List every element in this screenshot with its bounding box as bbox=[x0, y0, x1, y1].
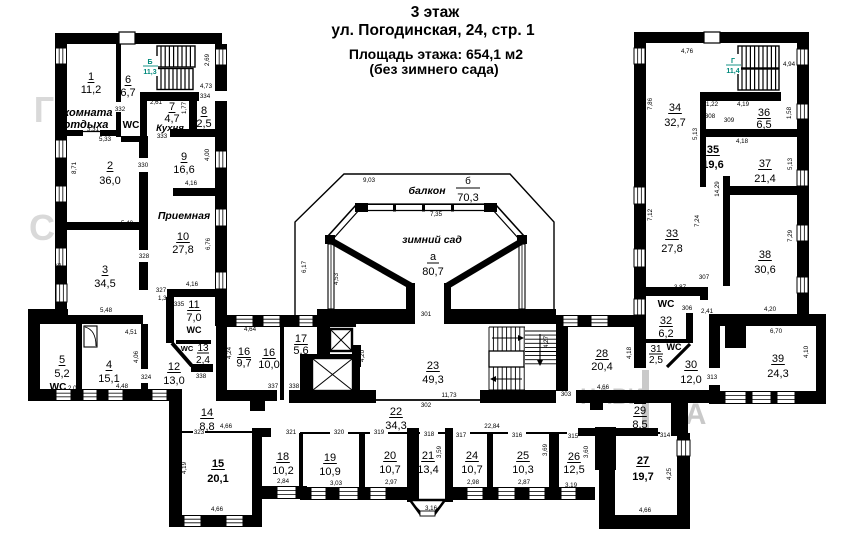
svg-text:314: 314 bbox=[660, 432, 671, 439]
svg-text:70,3: 70,3 bbox=[457, 192, 478, 204]
svg-text:1,58: 1,58 bbox=[786, 106, 793, 119]
svg-text:80,7: 80,7 bbox=[422, 266, 443, 278]
svg-text:337: 337 bbox=[268, 383, 279, 390]
svg-text:7,35: 7,35 bbox=[430, 211, 443, 218]
svg-text:Площадь этажа: 654,1 м2: Площадь этажа: 654,1 м2 bbox=[349, 46, 523, 62]
svg-text:6,7: 6,7 bbox=[120, 87, 135, 99]
svg-text:9: 9 bbox=[181, 151, 187, 163]
svg-text:Г: Г bbox=[731, 58, 735, 65]
svg-text:33: 33 bbox=[666, 228, 678, 240]
svg-text:17: 17 bbox=[295, 333, 307, 345]
svg-text:7,12: 7,12 bbox=[647, 208, 654, 221]
svg-text:8,71: 8,71 bbox=[71, 161, 78, 174]
svg-text:С: С bbox=[29, 207, 55, 248]
svg-text:16: 16 bbox=[238, 346, 250, 358]
svg-text:WC: WC bbox=[50, 382, 67, 393]
svg-text:315: 315 bbox=[568, 433, 579, 440]
svg-text:5,13: 5,13 bbox=[692, 127, 699, 140]
svg-text:6,17: 6,17 bbox=[301, 260, 308, 273]
svg-text:12: 12 bbox=[168, 361, 180, 373]
svg-text:7,86: 7,86 bbox=[647, 97, 654, 110]
svg-text:4,20: 4,20 bbox=[764, 306, 777, 313]
svg-text:32: 32 bbox=[660, 315, 672, 327]
svg-text:4,27: 4,27 bbox=[543, 335, 550, 348]
svg-text:WC: WC bbox=[181, 344, 194, 353]
svg-text:ул. Погодинская, 24, стр. 1: ул. Погодинская, 24, стр. 1 bbox=[331, 22, 535, 39]
svg-text:2,61: 2,61 bbox=[150, 99, 163, 106]
svg-text:13: 13 bbox=[197, 343, 209, 354]
svg-text:4,19: 4,19 bbox=[737, 101, 750, 108]
svg-text:3: 3 bbox=[102, 264, 108, 276]
svg-text:5,40: 5,40 bbox=[121, 220, 134, 227]
svg-text:4,00: 4,00 bbox=[204, 148, 211, 161]
svg-text:WC: WC bbox=[658, 299, 675, 310]
svg-text:26: 26 bbox=[568, 451, 580, 463]
svg-text:(без зимнего сада): (без зимнего сада) bbox=[369, 61, 498, 77]
svg-text:Г: Г bbox=[34, 89, 54, 130]
svg-text:49,3: 49,3 bbox=[422, 374, 443, 386]
svg-text:316: 316 bbox=[512, 432, 523, 439]
svg-text:балкон: балкон bbox=[408, 185, 446, 197]
svg-text:4,18: 4,18 bbox=[736, 138, 749, 145]
svg-text:10,7: 10,7 bbox=[461, 464, 482, 476]
svg-text:11,3: 11,3 bbox=[143, 69, 156, 76]
svg-text:11,73: 11,73 bbox=[441, 392, 457, 399]
svg-text:1,32: 1,32 bbox=[158, 295, 171, 302]
svg-text:11,4: 11,4 bbox=[726, 68, 739, 75]
svg-text:27,8: 27,8 bbox=[172, 244, 193, 256]
svg-text:8,5: 8,5 bbox=[632, 419, 647, 431]
svg-text:6: 6 bbox=[125, 74, 131, 86]
svg-text:5,33: 5,33 bbox=[99, 136, 112, 143]
svg-text:1: 1 bbox=[88, 71, 94, 83]
svg-text:10,2: 10,2 bbox=[272, 465, 293, 477]
svg-text:6,2: 6,2 bbox=[658, 328, 673, 340]
svg-text:36: 36 bbox=[758, 107, 770, 119]
svg-text:323: 323 bbox=[194, 429, 205, 436]
svg-text:9,03: 9,03 bbox=[363, 177, 376, 184]
svg-text:7: 7 bbox=[169, 101, 175, 113]
svg-text:333: 333 bbox=[157, 133, 168, 140]
svg-text:2,06: 2,06 bbox=[68, 385, 81, 392]
svg-text:317: 317 bbox=[456, 432, 467, 439]
svg-text:4,66: 4,66 bbox=[211, 506, 224, 513]
svg-text:22: 22 bbox=[390, 406, 402, 418]
svg-text:3,03: 3,03 bbox=[330, 480, 343, 487]
svg-text:4,66: 4,66 bbox=[220, 423, 233, 430]
svg-text:10,7: 10,7 bbox=[379, 464, 400, 476]
svg-text:31: 31 bbox=[650, 344, 662, 355]
svg-text:20,1: 20,1 bbox=[207, 473, 228, 485]
svg-text:4,06: 4,06 bbox=[133, 350, 140, 363]
svg-text:330: 330 bbox=[138, 162, 149, 169]
svg-text:308: 308 bbox=[705, 113, 716, 120]
svg-text:2: 2 bbox=[107, 160, 113, 172]
svg-text:335: 335 bbox=[174, 301, 185, 308]
svg-text:4,10: 4,10 bbox=[803, 345, 810, 358]
svg-text:3,59: 3,59 bbox=[436, 445, 443, 458]
svg-text:27,8: 27,8 bbox=[661, 243, 682, 255]
svg-text:4,19: 4,19 bbox=[181, 461, 188, 474]
svg-text:7,24: 7,24 bbox=[694, 214, 701, 227]
svg-text:5,13: 5,13 bbox=[787, 157, 794, 170]
svg-text:13,0: 13,0 bbox=[163, 375, 184, 387]
svg-text:4,94: 4,94 bbox=[783, 61, 796, 68]
svg-text:37: 37 bbox=[759, 158, 771, 170]
svg-text:2,41: 2,41 bbox=[701, 308, 714, 315]
svg-text:4,16: 4,16 bbox=[185, 180, 198, 187]
svg-text:5,2: 5,2 bbox=[54, 368, 69, 380]
svg-text:20: 20 bbox=[384, 450, 396, 462]
svg-text:303: 303 bbox=[561, 391, 572, 398]
svg-text:5: 5 bbox=[59, 354, 65, 366]
svg-text:4,53: 4,53 bbox=[333, 272, 340, 285]
svg-text:3,31: 3,31 bbox=[87, 126, 100, 133]
svg-text:1,22: 1,22 bbox=[706, 101, 719, 108]
svg-text:302: 302 bbox=[421, 402, 432, 409]
svg-text:10,0: 10,0 bbox=[258, 359, 279, 371]
svg-text:11: 11 bbox=[188, 299, 199, 311]
svg-text:13,4: 13,4 bbox=[417, 464, 438, 476]
svg-text:WC: WC bbox=[187, 325, 202, 335]
svg-text:24: 24 bbox=[466, 450, 478, 462]
svg-text:328: 328 bbox=[139, 253, 150, 260]
svg-text:306: 306 bbox=[682, 305, 693, 312]
svg-text:320: 320 bbox=[334, 429, 345, 436]
svg-text:16,6: 16,6 bbox=[173, 164, 194, 176]
svg-text:а: а bbox=[430, 251, 437, 263]
svg-text:4,24: 4,24 bbox=[226, 346, 233, 359]
svg-text:10,3: 10,3 bbox=[512, 464, 533, 476]
svg-text:3,16: 3,16 bbox=[425, 505, 438, 512]
svg-text:338: 338 bbox=[289, 383, 300, 390]
svg-text:4,51: 4,51 bbox=[125, 329, 138, 336]
svg-text:8: 8 bbox=[201, 105, 207, 117]
svg-text:307: 307 bbox=[699, 274, 710, 281]
svg-text:34: 34 bbox=[669, 102, 681, 114]
svg-text:3,19: 3,19 bbox=[565, 482, 578, 489]
svg-text:4,48: 4,48 bbox=[116, 383, 129, 390]
svg-text:2,4: 2,4 bbox=[196, 355, 210, 366]
svg-text:2,98: 2,98 bbox=[467, 479, 480, 486]
svg-text:2,5: 2,5 bbox=[649, 355, 663, 366]
svg-text:3,69: 3,69 bbox=[542, 443, 549, 456]
svg-text:309: 309 bbox=[724, 117, 735, 124]
svg-text:3 этаж: 3 этаж bbox=[411, 4, 460, 21]
svg-text:14,29: 14,29 bbox=[714, 181, 721, 197]
svg-text:38: 38 bbox=[759, 249, 771, 261]
svg-text:313: 313 bbox=[707, 374, 718, 381]
svg-text:6,70: 6,70 bbox=[770, 328, 783, 335]
svg-text:39: 39 bbox=[772, 353, 784, 365]
svg-text:4,73: 4,73 bbox=[200, 83, 213, 90]
svg-text:35: 35 bbox=[707, 144, 719, 156]
svg-text:6,76: 6,76 bbox=[205, 237, 212, 250]
svg-text:34,3: 34,3 bbox=[385, 420, 406, 432]
svg-text:4,76: 4,76 bbox=[681, 48, 694, 55]
svg-text:6,5: 6,5 bbox=[756, 119, 771, 131]
svg-text:20,4: 20,4 bbox=[591, 361, 612, 373]
svg-text:318: 318 bbox=[424, 431, 435, 438]
svg-text:327: 327 bbox=[156, 287, 167, 294]
svg-text:7,0: 7,0 bbox=[186, 312, 201, 324]
svg-text:34,5: 34,5 bbox=[94, 278, 115, 290]
svg-text:301: 301 bbox=[421, 311, 432, 318]
svg-text:3,87: 3,87 bbox=[674, 284, 687, 291]
svg-text:4,66: 4,66 bbox=[639, 507, 652, 514]
svg-text:18: 18 bbox=[277, 451, 289, 463]
svg-text:27: 27 bbox=[637, 455, 649, 467]
svg-text:2,87: 2,87 bbox=[518, 479, 531, 486]
svg-text:21,4: 21,4 bbox=[754, 173, 775, 185]
svg-text:5,48: 5,48 bbox=[100, 307, 113, 314]
svg-text:4,18: 4,18 bbox=[626, 346, 633, 359]
svg-text:2,69: 2,69 bbox=[204, 53, 211, 66]
svg-text:15: 15 bbox=[212, 458, 224, 470]
svg-text:332: 332 bbox=[115, 106, 126, 113]
svg-text:7,29: 7,29 bbox=[787, 229, 794, 242]
svg-text:32,7: 32,7 bbox=[664, 117, 685, 129]
svg-text:24,3: 24,3 bbox=[767, 368, 788, 380]
svg-text:338: 338 bbox=[196, 373, 207, 380]
svg-text:14: 14 bbox=[201, 407, 213, 419]
svg-text:зимний сад: зимний сад bbox=[402, 234, 462, 246]
svg-text:324: 324 bbox=[141, 374, 152, 381]
svg-text:2,97: 2,97 bbox=[385, 479, 398, 486]
svg-text:2,84: 2,84 bbox=[277, 478, 290, 485]
svg-text:30: 30 bbox=[685, 359, 697, 371]
svg-text:5,6: 5,6 bbox=[293, 345, 308, 357]
svg-text:1,77: 1,77 bbox=[181, 101, 188, 114]
svg-text:22,84: 22,84 bbox=[484, 423, 500, 430]
svg-text:2,5: 2,5 bbox=[196, 118, 211, 130]
svg-text:6,36: 6,36 bbox=[56, 262, 63, 275]
svg-text:25: 25 bbox=[517, 450, 529, 462]
svg-text:WC: WC bbox=[123, 120, 140, 131]
svg-text:30,6: 30,6 bbox=[754, 264, 775, 276]
svg-text:10,9: 10,9 bbox=[319, 466, 340, 478]
svg-text:19,6: 19,6 bbox=[702, 159, 723, 171]
svg-text:4,20: 4,20 bbox=[359, 349, 366, 362]
svg-text:4: 4 bbox=[106, 359, 112, 371]
svg-text:WC: WC bbox=[667, 342, 682, 352]
svg-text:28: 28 bbox=[596, 348, 608, 360]
svg-text:4,16: 4,16 bbox=[186, 281, 199, 288]
svg-text:комната: комната bbox=[63, 107, 112, 119]
svg-text:319: 319 bbox=[374, 429, 385, 436]
svg-text:11,2: 11,2 bbox=[81, 84, 102, 96]
svg-text:4,66: 4,66 bbox=[597, 384, 610, 391]
svg-text:19,7: 19,7 bbox=[632, 471, 653, 483]
svg-text:29: 29 bbox=[634, 405, 646, 417]
svg-text:Приемная: Приемная bbox=[158, 210, 210, 222]
svg-text:321: 321 bbox=[286, 429, 297, 436]
svg-text:Б: Б bbox=[147, 59, 152, 66]
svg-text:4,64: 4,64 bbox=[244, 326, 257, 333]
svg-text:12,5: 12,5 bbox=[563, 464, 584, 476]
svg-text:10: 10 bbox=[177, 231, 189, 243]
svg-text:12,0: 12,0 bbox=[680, 374, 701, 386]
svg-text:9,7: 9,7 bbox=[236, 358, 251, 370]
svg-text:19: 19 bbox=[324, 452, 336, 464]
svg-text:21: 21 bbox=[422, 450, 434, 462]
svg-text:23: 23 bbox=[427, 360, 439, 372]
svg-text:16: 16 bbox=[263, 347, 275, 359]
svg-text:334: 334 bbox=[200, 93, 211, 100]
svg-text:3,60: 3,60 bbox=[583, 445, 590, 458]
svg-text:36,0: 36,0 bbox=[99, 175, 120, 187]
svg-text:б: б bbox=[465, 175, 471, 187]
svg-text:4,25: 4,25 bbox=[666, 467, 673, 480]
